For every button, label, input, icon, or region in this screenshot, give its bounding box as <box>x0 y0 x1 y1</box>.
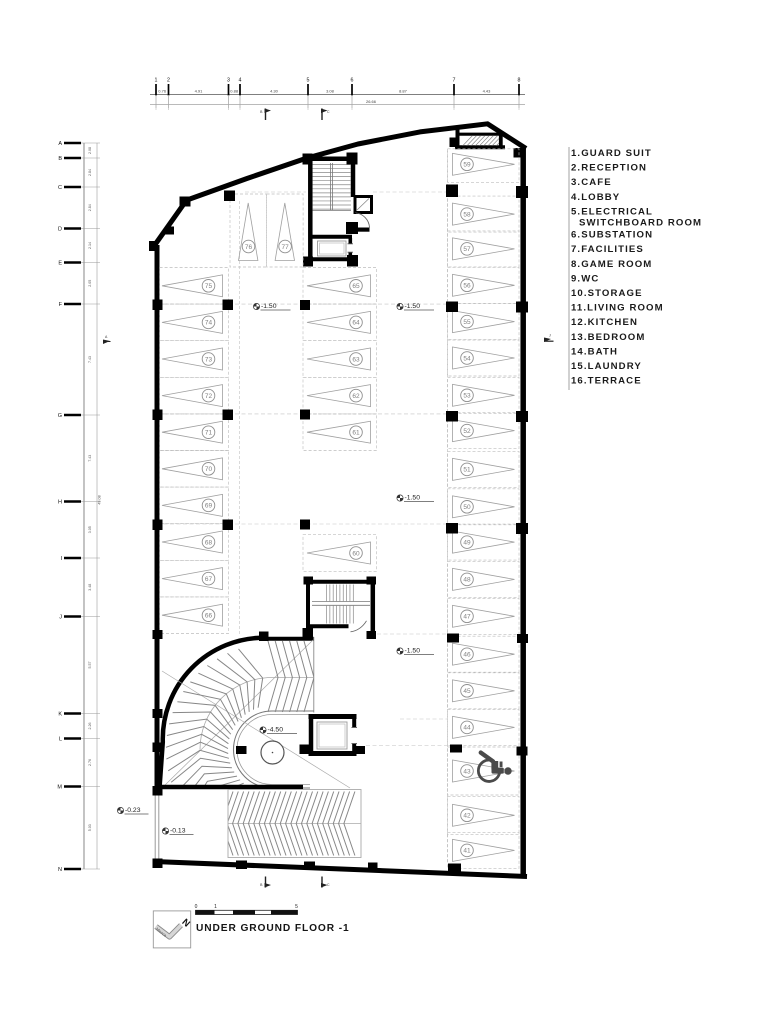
svg-text:49.08: 49.08 <box>98 495 102 505</box>
svg-text:SWITCHBOARD ROOM: SWITCHBOARD ROOM <box>579 217 702 228</box>
svg-text:-4.50: -4.50 <box>268 727 284 734</box>
svg-text:15.LAUNDRY: 15.LAUNDRY <box>571 361 642 372</box>
svg-text:4.91: 4.91 <box>195 89 204 94</box>
svg-text:UNDER GROUND FLOOR -1: UNDER GROUND FLOOR -1 <box>196 923 350 934</box>
svg-text:3.CAFE: 3.CAFE <box>571 177 612 188</box>
svg-text:54: 54 <box>463 355 471 362</box>
svg-text:2.RECEPTION: 2.RECEPTION <box>571 163 647 174</box>
svg-text:53: 53 <box>463 393 471 400</box>
svg-text:7.43: 7.43 <box>88 356 92 363</box>
svg-text:62: 62 <box>352 393 360 400</box>
svg-text:8: 8 <box>518 78 521 84</box>
svg-text:77: 77 <box>281 244 289 251</box>
svg-text:0.76: 0.76 <box>158 89 167 94</box>
svg-text:N: N <box>58 867 62 873</box>
svg-text:0: 0 <box>195 904 198 910</box>
svg-text:M: M <box>57 785 62 791</box>
svg-text:11.LIVING ROOM: 11.LIVING ROOM <box>571 303 664 314</box>
svg-text:5.57: 5.57 <box>88 662 92 669</box>
svg-text:3: 3 <box>227 78 230 84</box>
svg-text:76: 76 <box>245 244 253 251</box>
svg-text:60: 60 <box>352 550 360 557</box>
svg-text:3.48: 3.48 <box>88 584 92 591</box>
svg-text:49: 49 <box>463 539 471 546</box>
svg-text:J: J <box>549 334 551 338</box>
svg-text:58: 58 <box>463 211 471 218</box>
svg-text:26.66: 26.66 <box>366 99 377 104</box>
svg-text:57: 57 <box>463 246 471 253</box>
svg-text:67: 67 <box>205 576 213 583</box>
svg-text:68: 68 <box>205 539 213 546</box>
svg-text:72: 72 <box>205 393 213 400</box>
svg-text:61: 61 <box>352 430 360 437</box>
svg-text:4.30: 4.30 <box>270 89 279 94</box>
svg-text:H: H <box>58 500 62 506</box>
svg-text:5: 5 <box>307 78 310 84</box>
svg-text:1.GUARD SUIT: 1.GUARD SUIT <box>571 148 652 159</box>
svg-text:65: 65 <box>352 283 360 290</box>
svg-text:42: 42 <box>463 813 471 820</box>
svg-text:2.84: 2.84 <box>88 169 92 176</box>
svg-text:2.14: 2.14 <box>88 242 92 249</box>
svg-text:7.43: 7.43 <box>88 455 92 462</box>
svg-text:0.88: 0.88 <box>230 89 239 94</box>
svg-text:D: D <box>58 227 62 233</box>
svg-text:8.GAME ROOM: 8.GAME ROOM <box>571 259 652 270</box>
svg-text:-0.23: -0.23 <box>125 807 141 814</box>
svg-text:46: 46 <box>463 652 471 659</box>
svg-text:2.76: 2.76 <box>88 759 92 766</box>
svg-text:55: 55 <box>463 319 471 326</box>
svg-text:63: 63 <box>352 356 360 363</box>
svg-text:G: G <box>58 413 62 419</box>
svg-text:B: B <box>58 156 62 162</box>
svg-text:7: 7 <box>453 78 456 84</box>
svg-text:K: K <box>58 712 62 718</box>
svg-text:70: 70 <box>205 466 213 473</box>
svg-text:14.BATH: 14.BATH <box>571 346 618 357</box>
svg-text:73: 73 <box>205 356 213 363</box>
svg-text:6.SUBSTATION: 6.SUBSTATION <box>571 230 653 241</box>
svg-text:1: 1 <box>155 78 158 84</box>
svg-text:4.43: 4.43 <box>483 89 492 94</box>
svg-text:50: 50 <box>463 504 471 511</box>
svg-text:J: J <box>59 615 62 621</box>
svg-text:3.05: 3.05 <box>88 526 92 533</box>
svg-text:E: E <box>58 261 62 267</box>
svg-text:59: 59 <box>463 162 471 169</box>
svg-text:1: 1 <box>214 904 217 910</box>
svg-text:-1.50: -1.50 <box>261 303 277 310</box>
svg-text:2.84: 2.84 <box>88 204 92 211</box>
svg-text:48: 48 <box>463 577 471 584</box>
svg-text:43: 43 <box>463 768 471 775</box>
svg-text:2.05: 2.05 <box>88 280 92 287</box>
svg-text:8.87: 8.87 <box>399 89 408 94</box>
svg-text:2.08: 2.08 <box>88 147 92 154</box>
svg-text:75: 75 <box>205 283 213 290</box>
svg-text:71: 71 <box>205 430 213 437</box>
svg-text:4.LOBBY: 4.LOBBY <box>571 192 620 203</box>
svg-text:47: 47 <box>463 614 471 621</box>
svg-text:52: 52 <box>463 428 471 435</box>
svg-text:2.26: 2.26 <box>88 723 92 730</box>
svg-text:-0.13: -0.13 <box>170 828 186 835</box>
svg-text:12.KITCHEN: 12.KITCHEN <box>571 317 638 328</box>
svg-text:L: L <box>59 737 62 743</box>
svg-text:5.ELECTRICAL: 5.ELECTRICAL <box>571 206 653 217</box>
svg-text:6: 6 <box>351 78 354 84</box>
svg-text:2: 2 <box>167 78 170 84</box>
svg-text:74: 74 <box>205 320 213 327</box>
svg-text:44: 44 <box>463 725 471 732</box>
svg-text:-1.50: -1.50 <box>405 495 421 502</box>
svg-text:13.BEDROOM: 13.BEDROOM <box>571 332 645 343</box>
svg-text:41: 41 <box>463 848 471 855</box>
svg-text:-1.50: -1.50 <box>405 648 421 655</box>
svg-text:66: 66 <box>205 613 213 620</box>
svg-text:5: 5 <box>295 904 298 910</box>
svg-text:56: 56 <box>463 283 471 290</box>
svg-text:7.FACILITIES: 7.FACILITIES <box>571 244 644 255</box>
svg-text:A: A <box>58 141 62 147</box>
svg-text:5.03: 5.03 <box>88 824 92 831</box>
svg-text:16.TERRACE: 16.TERRACE <box>571 376 642 387</box>
svg-text:-1.50: -1.50 <box>405 303 421 310</box>
svg-text:3.08: 3.08 <box>326 89 335 94</box>
svg-text:C: C <box>58 185 62 191</box>
svg-text:9.WC: 9.WC <box>571 273 599 284</box>
svg-text:45: 45 <box>463 688 471 695</box>
svg-text:51: 51 <box>463 467 471 474</box>
svg-text:4: 4 <box>239 78 242 84</box>
svg-text:10.STORAGE: 10.STORAGE <box>571 288 643 299</box>
svg-text:69: 69 <box>205 503 213 510</box>
svg-text:64: 64 <box>352 320 360 327</box>
